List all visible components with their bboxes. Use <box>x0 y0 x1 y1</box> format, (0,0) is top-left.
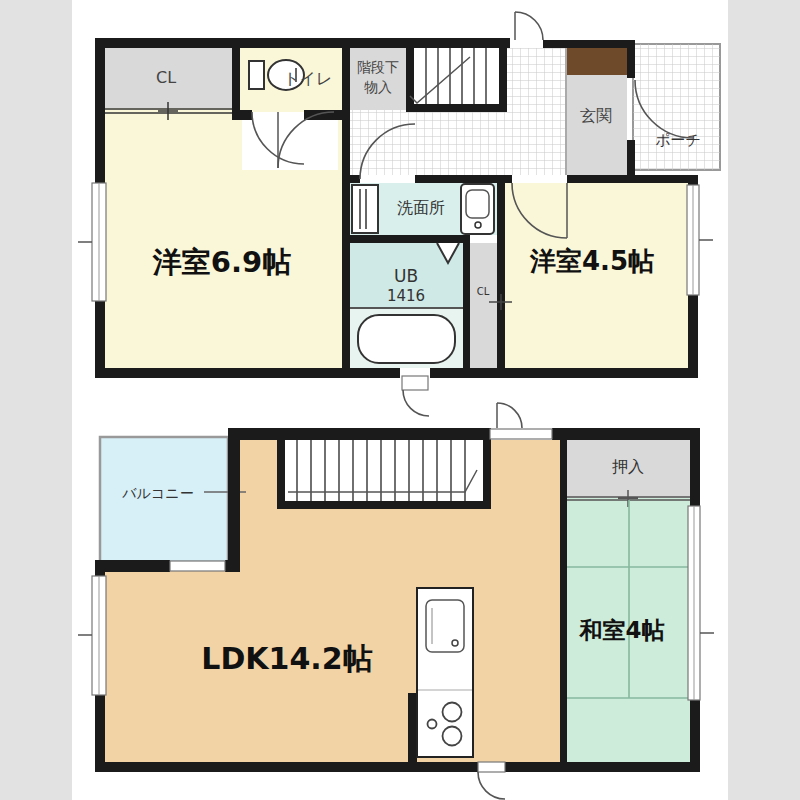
balcony-window <box>170 561 225 571</box>
bathtub-icon <box>358 315 455 363</box>
ldk-label: LDK14.2帖 <box>201 641 372 676</box>
closet-small-room <box>470 243 497 368</box>
floorplan-drawing: CL トイレ 階段下 物入 玄関 ポーチ 洗面所 UB 1416 CL 洋室6.… <box>0 0 800 800</box>
toilet-label: トイレ <box>283 69 332 88</box>
upper-floor-plan: CL トイレ 階段下 物入 玄関 ポーチ 洗面所 UB 1416 CL 洋室6.… <box>78 12 720 416</box>
washroom-label: 洗面所 <box>397 198 445 217</box>
hallway-upper-strip-pattern <box>507 48 566 110</box>
stairs-lower <box>277 428 491 509</box>
floorplan-image: CL トイレ 階段下 物入 玄関 ポーチ 洗面所 UB 1416 CL 洋室6.… <box>0 0 800 800</box>
lower-floor-plan: バルコニー 押入 LDK14.2帖 和室4帖 <box>78 403 714 799</box>
unit-bath-size-label: 1416 <box>387 287 425 305</box>
doorway-area <box>242 112 338 170</box>
balcony-label: バルコニー <box>121 485 193 501</box>
kitchen-counter <box>417 588 473 757</box>
bathroom-sink-icon <box>461 184 494 234</box>
porch <box>633 44 720 170</box>
western-room-4-5-label: 洋室4.5帖 <box>529 246 654 276</box>
porch-grid-pattern <box>633 44 720 170</box>
hall-exterior-door-swing <box>515 12 543 40</box>
japanese-room-label: 和室4帖 <box>578 617 664 643</box>
hallway-tile-pattern <box>350 110 566 175</box>
ldk-exterior-door-swing <box>497 403 522 428</box>
bath-exterior-door-swing <box>403 390 429 416</box>
entrance-label: 玄関 <box>580 106 612 125</box>
western-room-6-9-label: 洋室6.9帖 <box>152 245 291 279</box>
under-stairs-storage-label-1: 階段下 <box>357 59 399 75</box>
washing-machine-icon <box>352 185 378 233</box>
bath-exterior-door <box>402 376 428 390</box>
closet-small-label: CL <box>477 286 490 297</box>
porch-label: ポーチ <box>655 131 701 149</box>
stairs-upper <box>406 38 507 112</box>
unit-bath-label: UB <box>394 266 418 286</box>
under-stairs-storage-label-2: 物入 <box>364 79 392 95</box>
kitchen-sink-icon <box>426 600 464 652</box>
entrance-step <box>566 48 627 75</box>
closet-label: CL <box>156 68 176 87</box>
ldk-bottom-door-swing <box>478 772 505 799</box>
ldk-top-window <box>490 429 552 439</box>
oshiire-label: 押入 <box>612 457 644 476</box>
ldk-bottom-door <box>478 762 505 772</box>
